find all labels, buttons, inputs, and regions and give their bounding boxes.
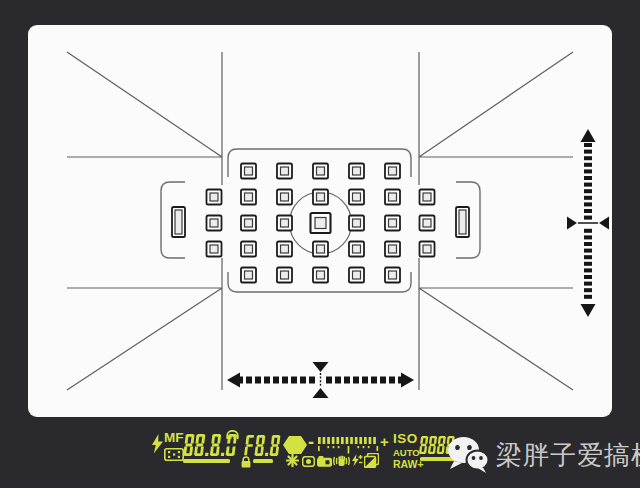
wechat-icon	[447, 436, 489, 474]
vertical-meter	[567, 129, 609, 317]
meter-arrow-right-icon	[567, 217, 577, 230]
meter-plus-label: +	[380, 434, 389, 449]
multi-exposure-icon	[364, 453, 379, 468]
watermark: 梁胖子爱搞机	[447, 436, 640, 474]
hand-stabilizer-icon	[333, 454, 350, 468]
status-lcd-bar: MF - +	[150, 430, 495, 478]
viewfinder-screen	[28, 25, 612, 417]
meter-arrow-down-icon	[581, 304, 596, 317]
lock-icon	[241, 456, 251, 468]
horizontal-meter	[227, 362, 414, 398]
shutter-superscript-icon	[226, 430, 239, 439]
meter-arrow-up-icon	[313, 388, 329, 398]
meter-arrow-down-icon	[313, 362, 329, 372]
viewfinder-graphics	[28, 25, 612, 417]
spot-metering-icon	[302, 456, 315, 467]
aperture-underline	[253, 459, 273, 463]
camera-viewfinder-diagram: MF - +	[0, 0, 640, 488]
aperture-display	[243, 435, 285, 456]
af-area-select-icon	[164, 448, 184, 461]
shutter-underline	[183, 459, 230, 463]
camera-monitor-icon	[317, 456, 332, 467]
exposure-scale	[318, 437, 379, 454]
mf-label: MF	[164, 431, 184, 445]
raw-label: RAW+	[393, 459, 424, 470]
flash-compensation-icon	[352, 454, 363, 468]
flash-bolt-icon	[152, 434, 163, 457]
meter-arrow-left-icon	[599, 217, 609, 230]
hexagon-indicator-icon	[283, 436, 307, 454]
ae-lock-asterisk-icon	[286, 454, 299, 467]
af-points-layer	[172, 164, 469, 283]
meter-arrow-up-icon	[581, 129, 596, 142]
watermark-text: 梁胖子爱搞机	[496, 438, 640, 473]
meter-minus-label: -	[308, 433, 314, 451]
